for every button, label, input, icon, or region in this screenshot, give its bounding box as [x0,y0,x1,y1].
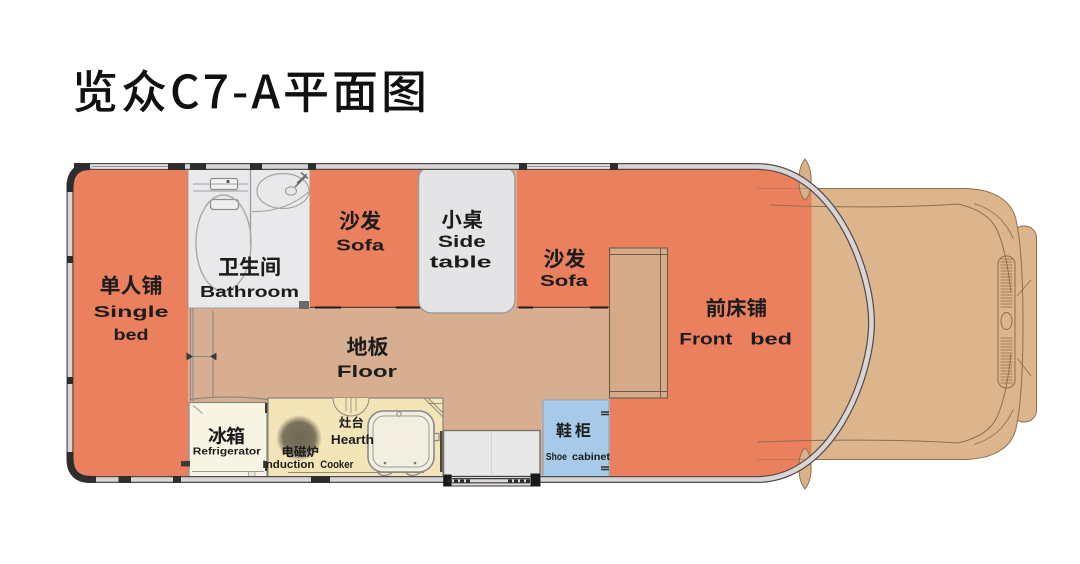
svg-text:Sofa: Sofa [336,238,384,255]
svg-text:bed: bed [750,330,792,348]
svg-text:Cooker: Cooker [320,459,354,471]
svg-text:cabinet: cabinet [572,451,611,463]
svg-text:Bathroom: Bathroom [200,284,299,301]
svg-text:Single: Single [94,304,170,321]
svg-text:Induction: Induction [263,459,315,471]
svg-text:Floor: Floor [337,362,398,381]
svg-text:table: table [430,253,492,271]
svg-text:Refrigerator: Refrigerator [193,446,261,457]
svg-text:Sofa: Sofa [540,273,588,290]
svg-text:Shoe: Shoe [546,451,567,463]
svg-text:bed: bed [114,327,149,344]
svg-text:Front: Front [679,330,733,348]
svg-text:Side: Side [438,233,486,251]
svg-text:Hearth: Hearth [331,432,374,447]
